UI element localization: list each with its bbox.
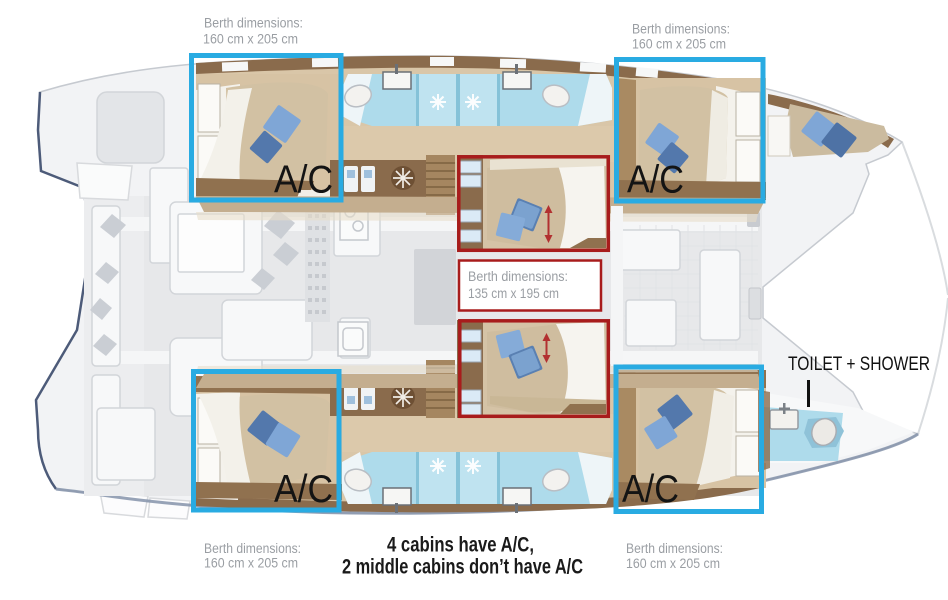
svg-text:TOILET + SHOWER: TOILET + SHOWER <box>788 353 930 375</box>
svg-text:160 cm x 205 cm: 160 cm x 205 cm <box>204 556 298 571</box>
svg-text:135 cm x 195 cm: 135 cm x 195 cm <box>468 286 559 301</box>
svg-text:A/C: A/C <box>627 159 684 202</box>
svg-text:A/C: A/C <box>274 468 333 511</box>
svg-text:Berth dimensions:: Berth dimensions: <box>626 541 723 556</box>
svg-text:Berth dimensions:: Berth dimensions: <box>204 541 301 556</box>
svg-text:2 middle cabins don’t have A/C: 2 middle cabins don’t have A/C <box>342 556 583 579</box>
svg-text:A/C: A/C <box>274 159 333 202</box>
svg-text:Berth dimensions:: Berth dimensions: <box>204 16 303 31</box>
svg-text:160 cm x 205 cm: 160 cm x 205 cm <box>626 556 720 571</box>
svg-text:160 cm x 205 cm: 160 cm x 205 cm <box>632 37 726 52</box>
svg-text:Berth dimensions:: Berth dimensions: <box>632 22 730 37</box>
svg-text:160 cm x 205 cm: 160 cm x 205 cm <box>203 32 298 47</box>
svg-text:Berth dimensions:: Berth dimensions: <box>468 269 568 284</box>
svg-text:A/C: A/C <box>622 468 679 511</box>
svg-text:4 cabins have A/C,: 4 cabins have A/C, <box>387 534 534 557</box>
